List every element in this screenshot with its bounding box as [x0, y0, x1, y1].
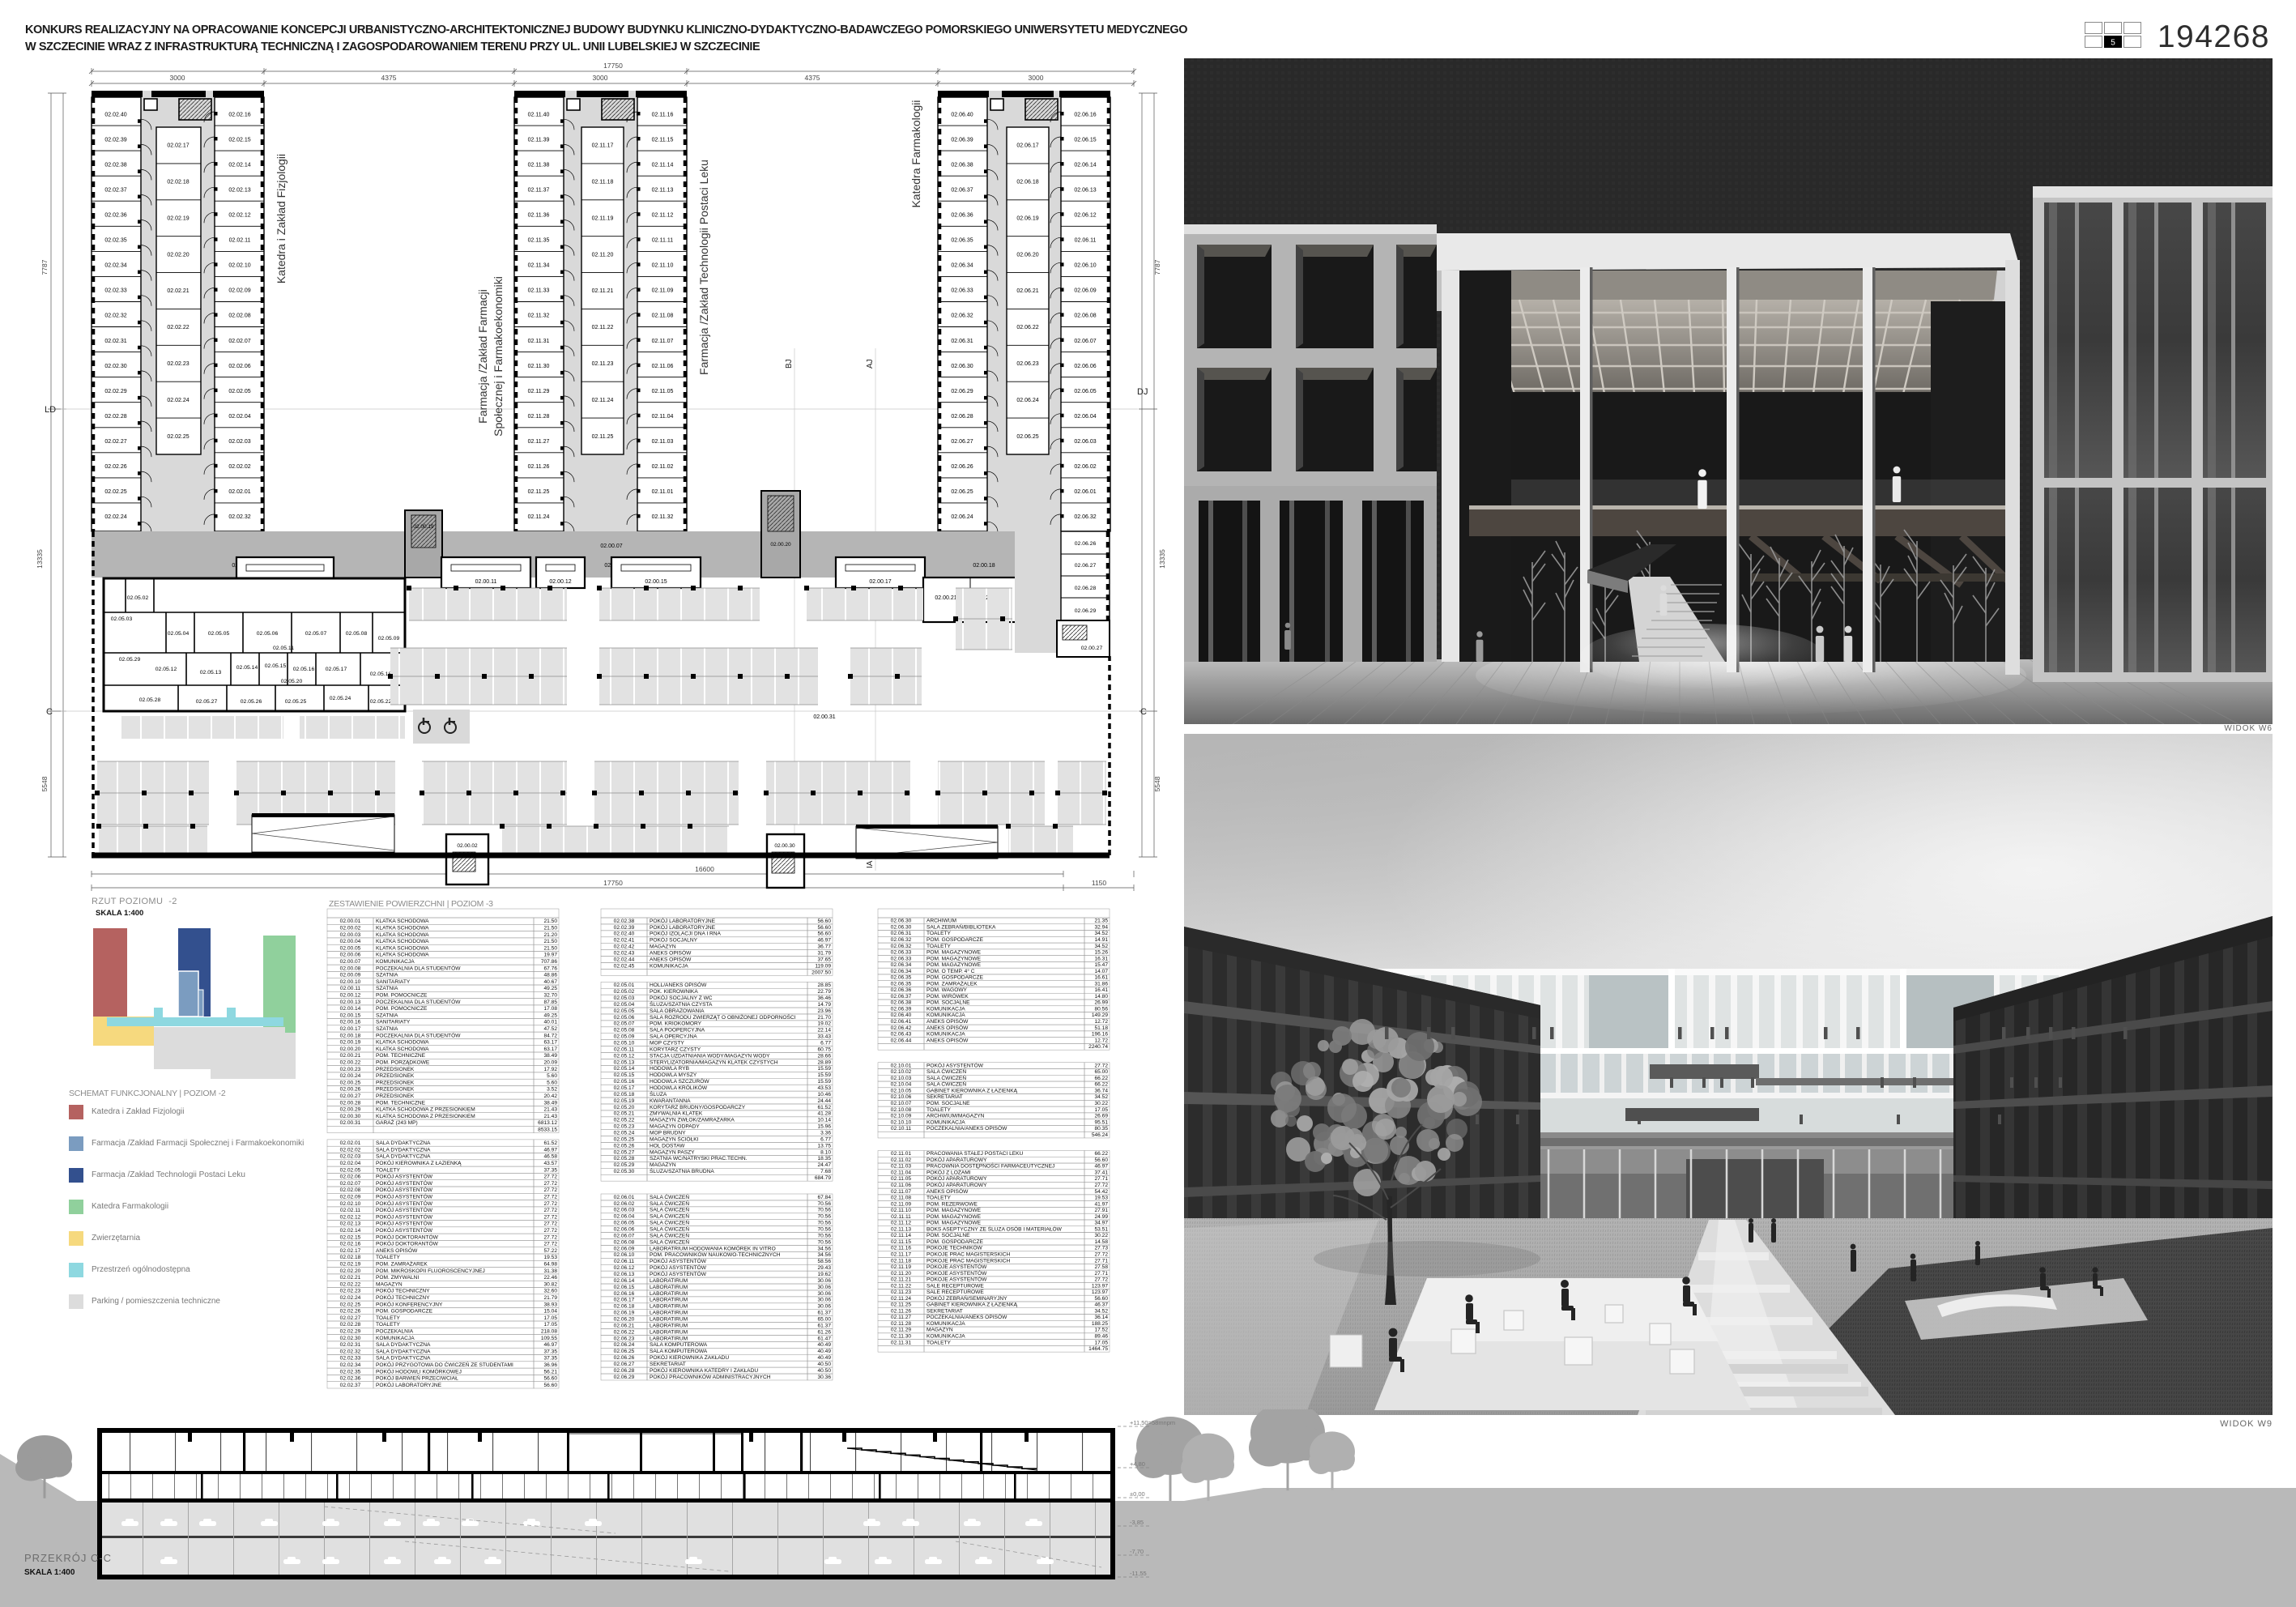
svg-text:POM. SOCJALNE: POM. SOCJALNE [926, 1233, 970, 1238]
svg-text:02.10.09: 02.10.09 [891, 1114, 912, 1119]
svg-text:31.79: 31.79 [817, 950, 831, 956]
svg-text:POKÓJ DOKTORANTÓW: POKÓJ DOKTORANTÓW [376, 1240, 439, 1247]
svg-text:36.77: 36.77 [817, 944, 831, 950]
svg-text:POKOJE ASYSTENTÓW: POKOJE ASYSTENTÓW [926, 1263, 987, 1270]
svg-text:02.00.07: 02.00.07 [340, 959, 361, 965]
svg-text:POKÓJ ASYSTENTÓW: POKÓJ ASYSTENTÓW [926, 1061, 984, 1068]
svg-text:02.02.20: 02.02.20 [340, 1268, 361, 1274]
svg-text:31.86: 31.86 [1094, 981, 1108, 987]
svg-text:ANEKS OPISÓW: ANEKS OPISÓW [926, 1024, 969, 1031]
svg-text:POM. MAGAZYNOWE: POM. MAGAZYNOWE [926, 962, 982, 968]
svg-text:POM. WIRÓWEK: POM. WIRÓWEK [926, 992, 969, 1000]
svg-text:17.05: 17.05 [543, 1315, 557, 1321]
svg-text:02.00.24: 02.00.24 [340, 1073, 361, 1079]
svg-text:MAGAZYN: MAGAZYN [650, 944, 676, 950]
svg-text:10.46: 10.46 [817, 1092, 831, 1098]
svg-text:21.50: 21.50 [543, 926, 557, 931]
svg-text:02.02.11: 02.02.11 [340, 1208, 361, 1213]
svg-text:KLATKA SCHODOWA: KLATKA SCHODOWA [376, 945, 429, 951]
svg-text:POKÓJ ASYSTENTÓW: POKÓJ ASYSTENTÓW [376, 1226, 433, 1234]
svg-text:27.72: 27.72 [1094, 1277, 1108, 1283]
svg-text:60.75: 60.75 [817, 1046, 831, 1052]
svg-text:-3,85: -3,85 [1130, 1519, 1144, 1526]
svg-text:POM. SOCJALNE: POM. SOCJALNE [926, 1000, 970, 1006]
svg-text:SALA ĆWICZEŃ: SALA ĆWICZEŃ [650, 1238, 689, 1245]
svg-text:ŚLUZA/SZATNIA BRUDNA: ŚLUZA/SZATNIA BRUDNA [650, 1167, 714, 1174]
svg-text:36.46: 36.46 [817, 995, 831, 1001]
svg-text:02.02.28: 02.02.28 [340, 1322, 361, 1328]
svg-text:3.52: 3.52 [547, 1087, 557, 1093]
svg-text:MAGAZYN: MAGAZYN [926, 1328, 953, 1333]
svg-text:MAGAZYN: MAGAZYN [650, 1162, 676, 1168]
svg-text:19.02: 19.02 [817, 1021, 831, 1027]
svg-text:43.53: 43.53 [817, 1085, 831, 1091]
svg-text:LABORATIRUM: LABORATIRUM [650, 1291, 688, 1297]
svg-text:MAGAZYN PASZY: MAGAZYN PASZY [650, 1149, 695, 1155]
svg-text:ARCHWIUM/MAGAZYN: ARCHWIUM/MAGAZYN [926, 1114, 985, 1119]
svg-text:24.99: 24.99 [1094, 1214, 1108, 1220]
svg-text:KLATKA SCHODOWA: KLATKA SCHODOWA [376, 926, 429, 931]
svg-text:02.11.15: 02.11.15 [891, 1239, 912, 1245]
svg-text:27.58: 27.58 [1094, 1264, 1108, 1270]
svg-text:02.02.38: 02.02.38 [614, 919, 635, 924]
svg-text:15.47: 15.47 [1094, 962, 1108, 968]
svg-text:KORYTARZ CZYSTY: KORYTARZ CZYSTY [650, 1046, 701, 1052]
svg-text:KOMUNIKACJA: KOMUNIKACJA [926, 1006, 965, 1012]
svg-text:POKÓJ KIEROWNIKA Z ŁAZIENKĄ: POKÓJ KIEROWNIKA Z ŁAZIENKĄ [376, 1159, 462, 1166]
svg-text:27.72: 27.72 [543, 1174, 557, 1180]
svg-text:21.20: 21.20 [543, 932, 557, 938]
svg-text:19.62: 19.62 [817, 1272, 831, 1277]
svg-text:02.11.08: 02.11.08 [891, 1196, 912, 1201]
svg-text:56.60: 56.60 [543, 1376, 557, 1382]
svg-text:02.11.17: 02.11.17 [891, 1251, 912, 1257]
svg-text:7787: 7787 [1153, 259, 1161, 275]
svg-text:27.72: 27.72 [543, 1228, 557, 1234]
svg-text:MAGAZYN ZWŁOK/ZAMRAŻARKA: MAGAZYN ZWŁOK/ZAMRAŻARKA [650, 1116, 735, 1123]
svg-text:POCZEKALNIA: POCZEKALNIA [376, 1329, 414, 1335]
svg-text:TOALETY: TOALETY [926, 1107, 952, 1113]
svg-text:SALE RECEPTUROWE: SALE RECEPTUROWE [926, 1289, 984, 1295]
svg-text:17.08: 17.08 [543, 1006, 557, 1012]
svg-text:02.10.10: 02.10.10 [891, 1119, 912, 1125]
svg-text:POKÓJ ZEBRAŃ/SEMINARYJNY: POKÓJ ZEBRAŃ/SEMINARYJNY [926, 1294, 1007, 1302]
svg-text:02.05.28: 02.05.28 [614, 1156, 635, 1162]
svg-text:02.05.06: 02.05.06 [614, 1015, 635, 1021]
svg-text:23.96: 23.96 [817, 1008, 831, 1014]
svg-text:46.97: 46.97 [543, 1342, 557, 1348]
svg-text:LABORATIRUM: LABORATIRUM [650, 1323, 688, 1328]
svg-text:02.11.09: 02.11.09 [891, 1201, 912, 1207]
svg-text:HODOWLA MYSZY: HODOWLA MYSZY [650, 1072, 697, 1078]
svg-text:40.50: 40.50 [817, 1368, 831, 1374]
svg-text:30.06: 30.06 [817, 1291, 831, 1297]
svg-text:02.05.09: 02.05.09 [614, 1034, 635, 1040]
svg-text:LABORATIRUM: LABORATIRUM [650, 1298, 688, 1303]
svg-text:19.53: 19.53 [543, 1255, 557, 1260]
svg-text:LABORATIRUM: LABORATIRUM [650, 1336, 688, 1341]
svg-text:02.10.08: 02.10.08 [891, 1107, 912, 1113]
svg-text:KOMUNIKACJA: KOMUNIKACJA [650, 963, 688, 969]
svg-text:KLATKA SCHODOWA: KLATKA SCHODOWA [376, 939, 429, 944]
svg-text:GARAŻ (243 MP): GARAŻ (243 MP) [376, 1119, 418, 1126]
svg-text:POKÓJ ASYSTENTÓW: POKÓJ ASYSTENTÓW [376, 1193, 433, 1200]
svg-text:32.94: 32.94 [1094, 924, 1108, 930]
svg-text:16.31: 16.31 [1094, 956, 1108, 961]
svg-text:56.60: 56.60 [817, 919, 831, 924]
svg-text:80.56: 80.56 [1094, 1006, 1108, 1012]
svg-text:SALA OPERCYJNA: SALA OPERCYJNA [650, 1034, 697, 1040]
svg-text:28.85: 28.85 [817, 983, 831, 988]
svg-text:BOKS ASEPTYCZNY ZE ŚLUZA OSÓB: BOKS ASEPTYCZNY ZE ŚLUZA OSÓB I MATERIAŁ… [926, 1225, 1063, 1232]
svg-text:+4,80: +4,80 [1130, 1460, 1145, 1468]
svg-text:KLATKA SCHODOWA: KLATKA SCHODOWA [376, 932, 429, 938]
svg-text:SALE RECEPTUROWE: SALE RECEPTUROWE [926, 1283, 984, 1289]
svg-text:SALA KOMPUTEROWA: SALA KOMPUTEROWA [650, 1342, 708, 1348]
svg-text:TOALETY: TOALETY [376, 1322, 401, 1328]
svg-text:KLATKA SCHODOWA: KLATKA SCHODOWA [376, 1040, 429, 1046]
svg-text:02.06.17: 02.06.17 [614, 1298, 635, 1303]
svg-text:54.42: 54.42 [1094, 1189, 1108, 1195]
svg-text:02.02.40: 02.02.40 [614, 931, 635, 937]
svg-text:POKÓJ ASYSTENTÓW: POKÓJ ASYSTENTÓW [650, 1257, 707, 1264]
svg-text:02.02.33: 02.02.33 [340, 1356, 361, 1362]
svg-text:707.86: 707.86 [541, 959, 558, 965]
svg-text:02.11.14: 02.11.14 [891, 1233, 912, 1238]
svg-text:40.49: 40.49 [817, 1342, 831, 1348]
svg-text:17.05: 17.05 [1094, 1107, 1108, 1113]
svg-text:70.56: 70.56 [817, 1239, 831, 1245]
svg-text:POM. ZAMRAŻAREK: POM. ZAMRAŻAREK [376, 1260, 428, 1268]
svg-text:19.97: 19.97 [543, 953, 557, 958]
svg-text:02.06.09: 02.06.09 [614, 1246, 635, 1251]
svg-text:8.10: 8.10 [820, 1149, 831, 1155]
svg-text:LABORATIRUM: LABORATIRUM [650, 1304, 688, 1310]
svg-text:POKOJE PRAC MAGISTERSKICH: POKOJE PRAC MAGISTERSKICH [926, 1258, 1011, 1264]
svg-text:02.00.06: 02.00.06 [340, 953, 361, 958]
svg-text:26.99: 26.99 [1094, 1000, 1108, 1006]
svg-text:POKÓJ SOCJALNY: POKÓJ SOCJALNY [650, 936, 698, 944]
svg-text:12.72: 12.72 [1094, 1019, 1108, 1025]
svg-text:PRACOWANIA STAŁEJ POSTACI LEKU: PRACOWANIA STAŁEJ POSTACI LEKU [926, 1151, 1024, 1157]
svg-text:POM. TECHNICZNE: POM. TECHNICZNE [376, 1100, 426, 1106]
svg-text:02.00.16: 02.00.16 [340, 1020, 361, 1025]
svg-text:56.21: 56.21 [543, 1369, 557, 1375]
svg-text:SALA DYDAKTYCZNA: SALA DYDAKTYCZNA [376, 1342, 431, 1348]
svg-text:ANEKS OPISÓW: ANEKS OPISÓW [376, 1247, 418, 1254]
svg-text:02.06.14: 02.06.14 [614, 1278, 635, 1284]
svg-text:TOALETY: TOALETY [926, 944, 952, 949]
svg-text:02.06.19: 02.06.19 [614, 1311, 635, 1316]
svg-text:24.47: 24.47 [817, 1162, 831, 1168]
svg-text:POM. MAGAZYNOWE: POM. MAGAZYNOWE [926, 950, 982, 956]
svg-text:POCZEKALNIA DLA STUDENTÓW: POCZEKALNIA DLA STUDENTÓW [376, 964, 461, 971]
svg-text:02.05.23: 02.05.23 [614, 1124, 635, 1130]
svg-text:02.05.13: 02.05.13 [614, 1059, 635, 1065]
svg-text:POKÓJ ASYSTENTÓW: POKÓJ ASYSTENTÓW [376, 1186, 433, 1193]
svg-text:±0,00: ±0,00 [1130, 1490, 1145, 1498]
svg-text:POM. MAGAZYNOWE: POM. MAGAZYNOWE [926, 956, 982, 961]
svg-text:02.06.10: 02.06.10 [614, 1252, 635, 1258]
svg-text:34.56: 34.56 [817, 1252, 831, 1258]
svg-text:HODOWLA SZCZURÓW: HODOWLA SZCZURÓW [650, 1077, 709, 1085]
svg-text:POKÓJ DOKTORANTÓW: POKÓJ DOKTORANTÓW [376, 1233, 439, 1240]
svg-text:02.02.07: 02.02.07 [340, 1181, 361, 1187]
svg-text:02.06.33: 02.06.33 [891, 956, 912, 961]
svg-text:02.06.34: 02.06.34 [891, 969, 912, 974]
svg-text:17.92: 17.92 [543, 1067, 557, 1072]
svg-text:STACJA UZDATNIANIA WODY/MAGAZY: STACJA UZDATNIANIA WODY/MAGAZYN WODY [650, 1053, 770, 1059]
svg-text:123.97: 123.97 [1092, 1283, 1109, 1289]
svg-text:02.06.11: 02.06.11 [614, 1259, 635, 1264]
svg-text:61.52: 61.52 [543, 1140, 557, 1146]
svg-text:SANITARIATY: SANITARIATY [376, 1020, 411, 1025]
svg-text:27.72: 27.72 [543, 1181, 557, 1187]
svg-text:37.35: 37.35 [543, 1356, 557, 1362]
svg-text:02.06.33: 02.06.33 [891, 950, 912, 956]
svg-text:KLATKA SCHODOWA Z PRZESIONKIEM: KLATKA SCHODOWA Z PRZESIONKIEM [376, 1114, 475, 1119]
svg-text:56.60: 56.60 [1094, 1157, 1108, 1163]
svg-text:POKÓJ TECHNICZNY: POKÓJ TECHNICZNY [376, 1287, 430, 1294]
svg-text:POKÓJ APARATUROWY: POKÓJ APARATUROWY [926, 1174, 987, 1182]
svg-text:02.00.05: 02.00.05 [340, 945, 361, 951]
svg-text:POKÓJ ASYSTENTÓW: POKÓJ ASYSTENTÓW [650, 1270, 707, 1277]
svg-text:80.35: 80.35 [1094, 1126, 1108, 1132]
svg-text:POKÓJ ASYSTENTÓW: POKÓJ ASYSTENTÓW [376, 1173, 433, 1180]
svg-text:28.89: 28.89 [817, 1059, 831, 1065]
svg-text:LABORATIRUM: LABORATIRUM [650, 1285, 688, 1290]
svg-text:19.53: 19.53 [1094, 1196, 1108, 1201]
svg-text:14.80: 14.80 [1094, 994, 1108, 1000]
svg-text:70.56: 70.56 [817, 1221, 831, 1226]
svg-text:02.11.12: 02.11.12 [891, 1221, 912, 1226]
svg-text:02.02.44: 02.02.44 [614, 957, 635, 962]
svg-text:02.05.19: 02.05.19 [614, 1098, 635, 1104]
svg-text:41.28: 41.28 [817, 1111, 831, 1117]
svg-text:32.70: 32.70 [543, 993, 557, 999]
svg-text:POM. KRIOKOMORY: POM. KRIOKOMORY [650, 1021, 702, 1027]
svg-text:66.22: 66.22 [1094, 1082, 1108, 1088]
svg-text:70.56: 70.56 [817, 1208, 831, 1213]
svg-text:SZATNIA: SZATNIA [376, 973, 398, 978]
svg-text:02.11.31: 02.11.31 [891, 1340, 912, 1345]
svg-text:02.00.09: 02.00.09 [340, 973, 361, 978]
svg-text:26.69: 26.69 [1094, 1114, 1108, 1119]
svg-text:15.59: 15.59 [817, 1079, 831, 1085]
svg-text:POCZEKALNIA DLA STUDENTÓW: POCZEKALNIA DLA STUDENTÓW [376, 1031, 461, 1038]
svg-text:119.09: 119.09 [815, 963, 831, 969]
svg-text:7.68: 7.68 [820, 1169, 831, 1174]
svg-text:40.50: 40.50 [817, 1362, 831, 1367]
svg-text:02.02.36: 02.02.36 [340, 1376, 361, 1382]
svg-text:POKÓJ BARWIEŃ PRZECIWCIAŁ: POKÓJ BARWIEŃ PRZECIWCIAŁ [376, 1375, 458, 1382]
svg-text:49.25: 49.25 [543, 1012, 557, 1018]
svg-text:POKÓJ PRACOWNIKÓW ADMINISTRACY: POKÓJ PRACOWNIKÓW ADMINISTRACYJNYCH [650, 1373, 771, 1380]
svg-text:66.22: 66.22 [1094, 1076, 1108, 1081]
svg-text:SALA ĆWICZEŃ: SALA ĆWICZEŃ [926, 1068, 966, 1075]
svg-text:65.00: 65.00 [1094, 1069, 1108, 1075]
svg-text:48.86: 48.86 [543, 973, 557, 978]
svg-text:546.24: 546.24 [1092, 1132, 1109, 1138]
svg-text:6.77: 6.77 [820, 1041, 831, 1046]
svg-text:02.11.04: 02.11.04 [891, 1170, 912, 1175]
svg-text:+11,50=58mnpm: +11,50=58mnpm [1130, 1419, 1175, 1426]
svg-text:02.06.31: 02.06.31 [891, 931, 912, 936]
svg-text:5.60: 5.60 [547, 1080, 557, 1085]
svg-text:02.11.29: 02.11.29 [891, 1328, 912, 1333]
svg-text:56.60: 56.60 [817, 925, 831, 931]
svg-text:36.96: 36.96 [543, 1362, 557, 1368]
svg-text:30.22: 30.22 [1094, 1233, 1108, 1238]
svg-text:14.07: 14.07 [1094, 969, 1108, 974]
svg-text:33.43: 33.43 [817, 1034, 831, 1040]
svg-text:17.05: 17.05 [543, 1322, 557, 1328]
svg-text:27.72: 27.72 [543, 1187, 557, 1193]
svg-text:SALA DYDAKTYCZNA: SALA DYDAKTYCZNA [376, 1356, 431, 1362]
svg-text:02.05.26: 02.05.26 [614, 1143, 635, 1149]
svg-text:46.97: 46.97 [543, 1147, 557, 1153]
svg-text:02.06.04: 02.06.04 [614, 1214, 635, 1220]
svg-text:KOMUNIKACJA: KOMUNIKACJA [376, 1336, 415, 1341]
svg-text:41.97: 41.97 [1094, 1201, 1108, 1207]
svg-text:POM. WAGOWY: POM. WAGOWY [926, 987, 968, 993]
svg-text:20.42: 20.42 [543, 1093, 557, 1099]
svg-text:02.00.10: 02.00.10 [340, 979, 361, 985]
svg-text:02.02.14: 02.02.14 [340, 1228, 361, 1234]
svg-text:SALA ĆWICZEŃ: SALA ĆWICZEŃ [926, 1074, 966, 1081]
svg-text:02.06.34: 02.06.34 [891, 962, 912, 968]
svg-text:30.06: 30.06 [817, 1304, 831, 1310]
svg-text:PRZEDSIONEK: PRZEDSIONEK [376, 1067, 415, 1072]
svg-text:3.36: 3.36 [820, 1131, 831, 1136]
svg-text:POM. PRACOWNIKÓW NAUKOWO-TECHN: POM. PRACOWNIKÓW NAUKOWO-TECHNICZNYCH [650, 1251, 781, 1258]
svg-text:02.02.06: 02.02.06 [340, 1174, 361, 1180]
svg-text:30.22: 30.22 [1094, 1101, 1108, 1106]
svg-text:34.52: 34.52 [1094, 931, 1108, 936]
svg-text:02.05.27: 02.05.27 [614, 1149, 635, 1155]
svg-text:36.14: 36.14 [1094, 1315, 1108, 1320]
svg-text:1464.75: 1464.75 [1088, 1346, 1108, 1352]
svg-text:POCZEKALNIA/ANEKS OPISÓW: POCZEKALNIA/ANEKS OPISÓW [926, 1124, 1007, 1132]
svg-text:37.41: 37.41 [1094, 1170, 1108, 1175]
svg-text:PRZEDSIONEK: PRZEDSIONEK [376, 1073, 415, 1079]
svg-text:02.06.37: 02.06.37 [891, 994, 912, 1000]
svg-text:46.97: 46.97 [817, 938, 831, 944]
svg-text:02.06.24: 02.06.24 [614, 1342, 635, 1348]
svg-text:POM. GOSPODARCZE: POM. GOSPODARCZE [926, 1239, 984, 1245]
svg-text:40.01: 40.01 [543, 1020, 557, 1025]
svg-text:14.79: 14.79 [817, 1002, 831, 1008]
svg-text:70.56: 70.56 [817, 1226, 831, 1232]
svg-text:61.26: 61.26 [817, 1329, 831, 1335]
svg-text:POKÓJ TECHNICZNY: POKÓJ TECHNICZNY [376, 1294, 430, 1301]
svg-text:61.37: 61.37 [817, 1311, 831, 1316]
svg-text:70.56: 70.56 [817, 1201, 831, 1207]
svg-text:02.02.23: 02.02.23 [340, 1289, 361, 1294]
svg-text:HOL DOSTAW: HOL DOSTAW [650, 1143, 685, 1149]
svg-text:KLATKA SCHODOWA Z PRZESIONKIEM: KLATKA SCHODOWA Z PRZESIONKIEM [376, 1107, 475, 1113]
svg-text:21.43: 21.43 [543, 1114, 557, 1119]
svg-text:POKOJE PRAC MAGISTERSKICH: POKOJE PRAC MAGISTERSKICH [926, 1251, 1011, 1257]
svg-text:ANEKS OPISÓW: ANEKS OPISÓW [926, 1036, 969, 1043]
svg-text:POCZEKALNIA DLA STUDENTÓW: POCZEKALNIA DLA STUDENTÓW [376, 998, 461, 1005]
svg-text:ZMYWALNIA KLATEK: ZMYWALNIA KLATEK [650, 1111, 703, 1117]
svg-text:02.06.18: 02.06.18 [614, 1304, 635, 1310]
svg-text:TOALETY: TOALETY [376, 1255, 401, 1260]
svg-text:27.72: 27.72 [1094, 1183, 1108, 1188]
svg-text:ANEKS OPISÓW: ANEKS OPISÓW [926, 1187, 969, 1195]
svg-text:37.65: 37.65 [817, 957, 831, 962]
svg-text:02.00.25: 02.00.25 [340, 1080, 361, 1085]
svg-text:02.06.02: 02.06.02 [614, 1201, 635, 1207]
svg-text:02.11.10: 02.11.10 [891, 1208, 912, 1213]
svg-text:02.11.16: 02.11.16 [891, 1246, 912, 1251]
svg-text:02.06.05: 02.06.05 [614, 1221, 635, 1226]
svg-text:POKOJE TECHNIKÓW: POKOJE TECHNIKÓW [926, 1244, 983, 1251]
svg-text:188.25: 188.25 [1092, 1321, 1109, 1327]
svg-text:KORYTARZ BRUDNY/GOSPODARCZY: KORYTARZ BRUDNY/GOSPODARCZY [650, 1105, 746, 1110]
svg-text:63.17: 63.17 [543, 1040, 557, 1046]
svg-text:SALA ĆWICZEŃ: SALA ĆWICZEŃ [650, 1231, 689, 1238]
svg-text:SALA ZEBRAŃ/BIBLIOTEKA: SALA ZEBRAŃ/BIBLIOTEKA [926, 923, 996, 930]
svg-text:POKÓJ APARATUROWY: POKÓJ APARATUROWY [926, 1181, 987, 1188]
svg-text:02.11.27: 02.11.27 [891, 1315, 912, 1320]
svg-text:ARCHIWUM: ARCHIWUM [926, 919, 956, 924]
svg-text:27.71: 27.71 [1094, 1176, 1108, 1182]
svg-text:02.02.26: 02.02.26 [340, 1309, 361, 1315]
svg-text:02.00.01: 02.00.01 [340, 919, 361, 924]
svg-text:02.06.32: 02.06.32 [891, 944, 912, 949]
svg-text:02.11.02: 02.11.02 [891, 1157, 912, 1163]
svg-text:27.72: 27.72 [543, 1201, 557, 1207]
svg-text:PRZEKRÓJ C-C: PRZEKRÓJ C-C [24, 1552, 112, 1564]
svg-text:02.06.03: 02.06.03 [614, 1208, 635, 1213]
svg-text:02.06.06: 02.06.06 [614, 1226, 635, 1232]
svg-text:POKÓJ ASYSTENTÓW: POKÓJ ASYSTENTÓW [376, 1213, 433, 1220]
svg-text:MAGAZYN: MAGAZYN [376, 1281, 403, 1287]
svg-text:02.02.12: 02.02.12 [340, 1214, 361, 1220]
svg-text:POKÓJ PRZYGOTOWA DO ĆWICZEŃ ZE: POKÓJ PRZYGOTOWA DO ĆWICZEŃ ZE STUDENTAM… [376, 1361, 513, 1368]
svg-text:21.79: 21.79 [543, 1295, 557, 1301]
svg-text:22.79: 22.79 [817, 989, 831, 995]
svg-text:02.06.27: 02.06.27 [614, 1362, 635, 1367]
svg-text:70.56: 70.56 [817, 1233, 831, 1238]
svg-text:POKÓJ KIEROWNIKA ZAKŁADU: POKÓJ KIEROWNIKA ZAKŁADU [650, 1353, 729, 1361]
svg-text:196.16: 196.16 [1092, 1032, 1109, 1038]
svg-text:02.05.04: 02.05.04 [614, 1002, 635, 1008]
svg-text:684.79: 684.79 [815, 1175, 832, 1181]
svg-text:02.05.24: 02.05.24 [614, 1131, 635, 1136]
svg-text:63.17: 63.17 [543, 1046, 557, 1052]
svg-text:02.00.13: 02.00.13 [340, 1000, 361, 1005]
svg-text:27.73: 27.73 [1094, 1246, 1108, 1251]
svg-text:POKÓJ ASYSTENTÓW: POKÓJ ASYSTENTÓW [650, 1264, 707, 1271]
svg-text:34.52: 34.52 [1094, 1308, 1108, 1314]
svg-text:12.72: 12.72 [1094, 1038, 1108, 1043]
svg-text:17.52: 17.52 [1094, 1328, 1108, 1333]
svg-text:02.10.04: 02.10.04 [891, 1082, 912, 1088]
svg-text:43.57: 43.57 [543, 1161, 557, 1166]
svg-text:16.61: 16.61 [1094, 975, 1108, 981]
svg-text:02.06.25: 02.06.25 [614, 1349, 635, 1354]
svg-text:24.44: 24.44 [817, 1098, 831, 1104]
svg-text:ANEKS OPISÓW: ANEKS OPISÓW [650, 948, 692, 956]
svg-text:02.10.05: 02.10.05 [891, 1088, 912, 1093]
svg-text:POKÓJ SOCJALNY Z WC: POKÓJ SOCJALNY Z WC [650, 994, 713, 1001]
svg-text:02.06.36: 02.06.36 [891, 987, 912, 993]
svg-text:POM. MIKROSKOPII FLUOROSCENCYJ: POM. MIKROSKOPII FLUOROSCENCYJNEJ [376, 1268, 485, 1274]
svg-text:21.35: 21.35 [1094, 919, 1108, 924]
